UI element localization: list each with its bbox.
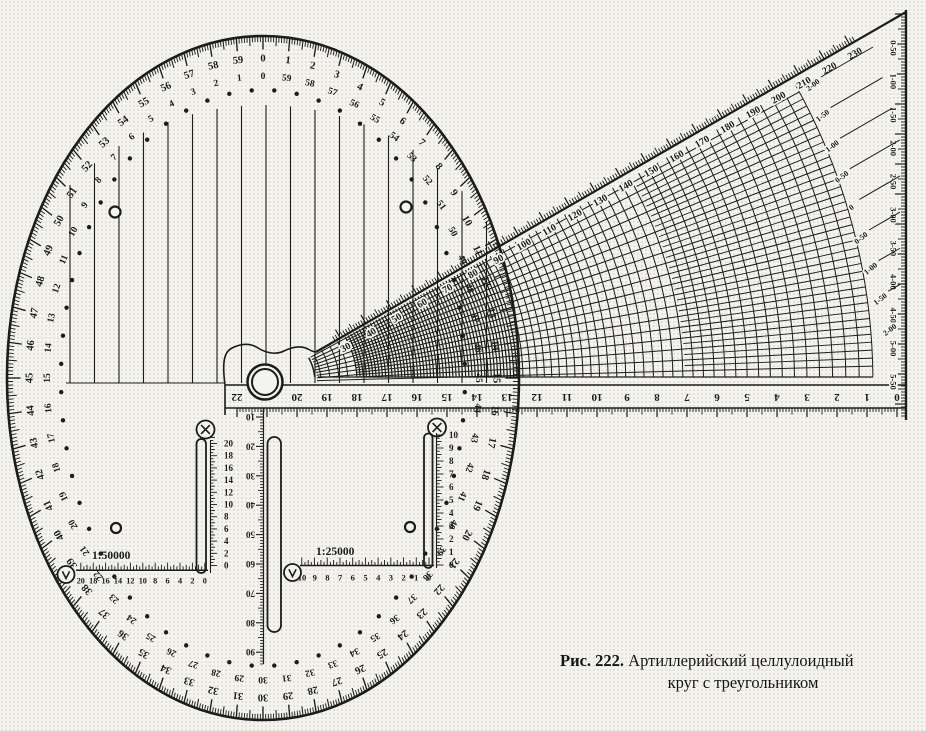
svg-text:28: 28 — [210, 666, 222, 678]
svg-text:9: 9 — [80, 200, 91, 210]
svg-text:1: 1 — [285, 55, 291, 66]
svg-text:35: 35 — [368, 630, 381, 644]
svg-text:52: 52 — [80, 159, 95, 174]
svg-text:58: 58 — [304, 78, 316, 90]
svg-text:7: 7 — [449, 469, 454, 479]
svg-text:2: 2 — [449, 534, 454, 544]
svg-text:17: 17 — [46, 432, 58, 444]
svg-text:49: 49 — [42, 244, 56, 258]
svg-text:11: 11 — [562, 391, 572, 403]
svg-text:2: 2 — [213, 79, 220, 90]
svg-text:47: 47 — [28, 307, 41, 320]
svg-text:7: 7 — [110, 152, 120, 163]
svg-text:6: 6 — [166, 577, 170, 586]
book-figure-page: { "figure": { "caption_prefix": "Рис. 22… — [0, 0, 926, 731]
svg-text:33: 33 — [326, 657, 338, 670]
svg-text:31: 31 — [281, 672, 292, 683]
svg-text:9: 9 — [448, 188, 460, 199]
svg-text:59: 59 — [232, 55, 244, 67]
svg-text:15: 15 — [441, 391, 453, 403]
svg-text:42: 42 — [34, 468, 48, 481]
svg-text:35: 35 — [137, 646, 152, 661]
svg-text:3: 3 — [190, 87, 198, 98]
caption-number: Рис. 222. — [560, 651, 624, 670]
svg-text:18: 18 — [89, 577, 97, 586]
svg-text:31: 31 — [232, 689, 244, 701]
svg-text:1: 1 — [414, 573, 418, 583]
svg-text:13: 13 — [46, 312, 58, 324]
svg-text:29: 29 — [234, 672, 245, 683]
svg-text:29: 29 — [282, 689, 294, 701]
svg-text:8: 8 — [654, 391, 660, 403]
svg-text:4: 4 — [178, 577, 182, 586]
svg-text:50: 50 — [52, 214, 67, 229]
svg-text:43: 43 — [28, 437, 41, 450]
svg-text:130: 130 — [591, 192, 609, 209]
svg-text:4: 4 — [168, 99, 177, 110]
svg-text:3: 3 — [804, 391, 810, 403]
svg-text:51: 51 — [434, 199, 448, 213]
svg-text:16: 16 — [224, 463, 234, 473]
svg-text:43: 43 — [468, 432, 480, 444]
svg-text:12: 12 — [224, 487, 234, 497]
svg-text:15: 15 — [491, 373, 502, 384]
svg-text:0-50: 0-50 — [889, 40, 899, 56]
svg-text:53: 53 — [405, 151, 419, 165]
svg-text:16: 16 — [411, 391, 423, 403]
svg-text:30: 30 — [258, 692, 269, 703]
svg-text:45: 45 — [25, 373, 36, 384]
svg-text:12: 12 — [126, 577, 134, 586]
svg-text:6: 6 — [397, 116, 408, 128]
svg-text:10: 10 — [246, 412, 256, 422]
svg-text:4-00: 4-00 — [889, 274, 899, 290]
svg-text:17: 17 — [485, 437, 498, 450]
svg-text:1-00: 1-00 — [889, 74, 899, 90]
svg-text:55: 55 — [368, 113, 381, 127]
svg-text:180: 180 — [719, 119, 737, 136]
svg-text:56: 56 — [348, 98, 361, 111]
svg-text:8: 8 — [153, 577, 157, 586]
svg-text:6: 6 — [351, 573, 355, 583]
svg-text:26: 26 — [165, 645, 178, 658]
svg-text:24: 24 — [125, 612, 139, 626]
caption-text-line2: круг с треугольником — [560, 672, 926, 694]
svg-text:20: 20 — [459, 528, 474, 543]
svg-text:2: 2 — [224, 548, 229, 558]
svg-text:4: 4 — [355, 81, 365, 93]
svg-text:18: 18 — [224, 451, 234, 461]
svg-text:57: 57 — [183, 68, 196, 82]
svg-text:0-50: 0-50 — [833, 169, 850, 185]
svg-text:8: 8 — [224, 512, 229, 522]
svg-text:6: 6 — [224, 524, 229, 534]
svg-text:19: 19 — [321, 391, 333, 403]
svg-text:24: 24 — [394, 627, 410, 643]
svg-text:1:50000: 1:50000 — [92, 550, 131, 562]
artillery-circle-diagram: 0015925835745655565475385295110501149124… — [0, 0, 926, 731]
svg-text:19: 19 — [58, 490, 71, 503]
svg-text:5: 5 — [377, 97, 387, 109]
svg-text:0: 0 — [261, 72, 266, 82]
svg-text:3: 3 — [332, 69, 340, 81]
svg-text:50: 50 — [446, 225, 460, 238]
svg-text:190: 190 — [744, 104, 762, 121]
svg-text:4: 4 — [774, 391, 780, 403]
svg-text:50: 50 — [246, 530, 256, 540]
svg-text:5: 5 — [147, 114, 156, 125]
svg-text:0: 0 — [449, 560, 454, 570]
svg-text:11: 11 — [58, 253, 71, 265]
svg-text:12: 12 — [51, 282, 64, 294]
svg-text:7: 7 — [684, 391, 690, 403]
svg-text:6: 6 — [714, 391, 720, 403]
svg-text:30: 30 — [258, 674, 268, 684]
svg-text:8: 8 — [94, 175, 105, 185]
svg-text:10: 10 — [459, 214, 474, 229]
svg-text:90: 90 — [246, 647, 256, 657]
svg-text:7: 7 — [416, 137, 427, 149]
svg-text:14: 14 — [44, 342, 55, 353]
svg-text:6: 6 — [449, 482, 454, 492]
svg-text:8: 8 — [449, 456, 454, 466]
svg-text:18: 18 — [351, 391, 363, 403]
svg-text:22: 22 — [431, 582, 446, 597]
svg-text:12: 12 — [531, 391, 543, 403]
svg-text:1-50: 1-50 — [872, 291, 889, 307]
svg-text:7: 7 — [338, 573, 343, 583]
svg-text:27: 27 — [330, 674, 343, 688]
svg-text:5: 5 — [363, 573, 367, 583]
svg-text:1: 1 — [237, 74, 243, 84]
svg-text:34: 34 — [158, 661, 173, 676]
svg-text:9: 9 — [313, 573, 317, 583]
svg-text:26: 26 — [353, 661, 367, 675]
svg-text:1-50: 1-50 — [814, 108, 831, 124]
svg-text:9: 9 — [449, 443, 454, 453]
svg-text:52: 52 — [420, 174, 434, 188]
svg-text:46: 46 — [25, 340, 37, 352]
svg-text:1-00: 1-00 — [862, 261, 879, 277]
svg-text:1:25000: 1:25000 — [316, 546, 355, 558]
svg-text:32: 32 — [207, 683, 220, 696]
svg-text:80: 80 — [246, 618, 256, 628]
svg-text:18: 18 — [479, 468, 493, 481]
svg-text:23: 23 — [414, 605, 429, 620]
svg-text:58: 58 — [207, 60, 220, 73]
svg-text:4-50: 4-50 — [889, 307, 899, 323]
svg-text:3: 3 — [449, 521, 454, 531]
svg-text:140: 140 — [617, 178, 635, 195]
svg-text:8: 8 — [433, 161, 445, 172]
svg-text:70: 70 — [246, 588, 256, 598]
svg-text:57: 57 — [326, 86, 338, 99]
svg-text:19: 19 — [470, 498, 484, 512]
svg-text:2-00: 2-00 — [889, 140, 899, 156]
svg-text:0: 0 — [260, 54, 265, 65]
svg-text:34: 34 — [348, 645, 361, 658]
svg-text:0-50: 0-50 — [852, 230, 869, 246]
svg-text:40: 40 — [246, 500, 256, 510]
svg-text:20: 20 — [67, 517, 81, 530]
svg-text:48: 48 — [34, 275, 48, 288]
svg-text:1: 1 — [449, 547, 454, 557]
svg-text:1-00: 1-00 — [824, 138, 841, 154]
svg-text:14: 14 — [471, 391, 483, 403]
svg-text:8: 8 — [325, 573, 329, 583]
svg-text:53: 53 — [97, 135, 112, 150]
svg-text:30: 30 — [246, 471, 256, 481]
svg-text:13: 13 — [501, 391, 513, 403]
svg-text:2: 2 — [834, 391, 840, 403]
svg-text:0: 0 — [203, 577, 207, 586]
svg-text:160: 160 — [668, 148, 686, 165]
svg-text:59: 59 — [281, 73, 292, 84]
svg-text:3: 3 — [389, 573, 393, 583]
svg-text:10: 10 — [591, 391, 603, 403]
svg-text:36: 36 — [387, 612, 401, 626]
svg-text:36: 36 — [116, 627, 131, 642]
svg-text:2: 2 — [401, 573, 405, 583]
svg-text:20: 20 — [291, 391, 303, 403]
svg-text:10: 10 — [67, 225, 81, 238]
svg-text:14: 14 — [114, 577, 122, 586]
svg-text:0: 0 — [427, 573, 431, 583]
svg-text:20: 20 — [77, 577, 85, 586]
svg-text:25: 25 — [144, 630, 157, 644]
figure-caption: Рис. 222. Артиллерийский целлулоидный кр… — [560, 650, 926, 695]
svg-text:6: 6 — [127, 132, 137, 143]
svg-text:0: 0 — [224, 561, 229, 571]
svg-text:37: 37 — [97, 605, 112, 620]
svg-text:0: 0 — [894, 391, 900, 403]
svg-text:21: 21 — [78, 543, 92, 557]
svg-text:40: 40 — [52, 528, 67, 543]
svg-text:41: 41 — [42, 498, 56, 512]
svg-text:5-50: 5-50 — [889, 374, 899, 390]
svg-text:15: 15 — [43, 373, 53, 383]
svg-text:20: 20 — [224, 439, 234, 449]
svg-text:23: 23 — [108, 591, 122, 605]
svg-text:32: 32 — [304, 666, 316, 678]
svg-text:10: 10 — [224, 500, 234, 510]
svg-text:41: 41 — [455, 490, 468, 503]
svg-text:4: 4 — [376, 573, 381, 583]
svg-text:2: 2 — [190, 577, 194, 586]
svg-text:20: 20 — [246, 441, 256, 451]
svg-text:10: 10 — [139, 577, 147, 586]
svg-text:5-00: 5-00 — [889, 341, 899, 357]
svg-text:51: 51 — [65, 186, 80, 201]
svg-text:56: 56 — [159, 80, 173, 94]
svg-text:200: 200 — [770, 90, 788, 107]
svg-text:4: 4 — [449, 508, 454, 518]
svg-text:4: 4 — [224, 536, 229, 546]
svg-text:30: 30 — [339, 341, 353, 356]
svg-text:16: 16 — [44, 403, 55, 414]
svg-text:2: 2 — [309, 60, 316, 72]
svg-text:16: 16 — [102, 577, 110, 586]
svg-text:55: 55 — [137, 96, 152, 111]
svg-text:22: 22 — [231, 391, 243, 403]
svg-text:54: 54 — [116, 114, 132, 130]
svg-text:10: 10 — [449, 430, 459, 440]
svg-text:5: 5 — [449, 495, 454, 505]
svg-text:28: 28 — [306, 683, 319, 696]
svg-text:1: 1 — [864, 391, 870, 403]
svg-text:2-00: 2-00 — [881, 322, 898, 338]
svg-text:9: 9 — [624, 391, 630, 403]
svg-text:44: 44 — [25, 404, 37, 416]
svg-text:33: 33 — [183, 674, 196, 688]
svg-text:25: 25 — [375, 646, 390, 661]
svg-text:3-00: 3-00 — [889, 207, 899, 223]
caption-text-line1: Артиллерийский целлулоидный — [628, 651, 853, 670]
svg-text:5: 5 — [744, 391, 750, 403]
svg-text:14: 14 — [224, 475, 234, 485]
svg-text:60: 60 — [246, 559, 256, 569]
svg-text:17: 17 — [381, 391, 393, 403]
svg-text:54: 54 — [387, 130, 401, 144]
svg-text:18: 18 — [51, 461, 64, 473]
svg-text:42: 42 — [463, 461, 476, 473]
svg-text:37: 37 — [404, 591, 418, 605]
svg-text:27: 27 — [187, 657, 199, 670]
